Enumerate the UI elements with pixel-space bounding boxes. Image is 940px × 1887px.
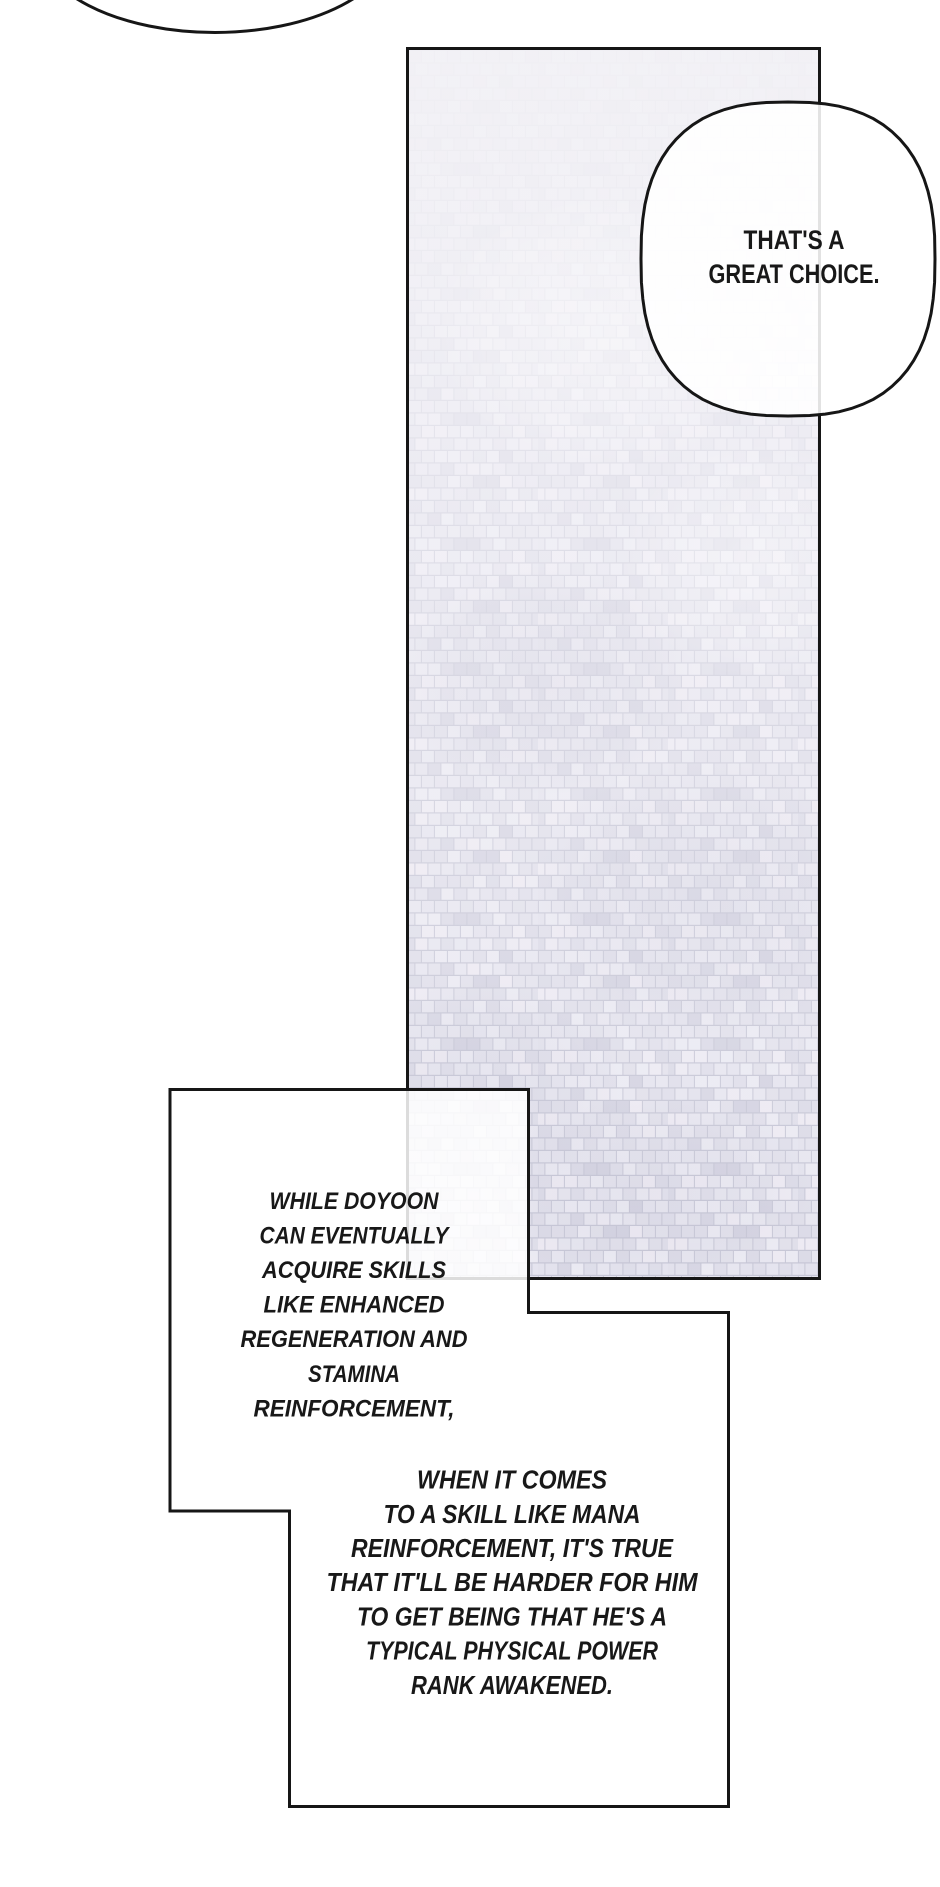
svg-text:RANK AWAKENED.: RANK AWAKENED. <box>411 1670 613 1700</box>
svg-text:TO A SKILL LIKE MANA: TO A SKILL LIKE MANA <box>384 1499 641 1529</box>
svg-text:LIKE ENHANCED: LIKE ENHANCED <box>264 1292 445 1319</box>
svg-text:ACQUIRE SKILLS: ACQUIRE SKILLS <box>261 1257 446 1284</box>
svg-text:THAT'S A: THAT'S A <box>744 225 845 255</box>
svg-text:CAN EVENTUALLY: CAN EVENTUALLY <box>260 1222 451 1249</box>
svg-text:TYPICAL PHYSICAL POWER: TYPICAL PHYSICAL POWER <box>366 1636 658 1666</box>
svg-text:TO GET BEING THAT HE'S A: TO GET BEING THAT HE'S A <box>357 1601 667 1631</box>
svg-text:STAMINA: STAMINA <box>308 1361 400 1388</box>
svg-text:WHILE DOYOON: WHILE DOYOON <box>270 1188 440 1215</box>
svg-text:GREAT CHOICE.: GREAT CHOICE. <box>709 259 880 289</box>
svg-text:WHEN IT COMES: WHEN IT COMES <box>417 1465 608 1495</box>
svg-text:REINFORCEMENT,: REINFORCEMENT, <box>254 1395 455 1422</box>
svg-text:REGENERATION AND: REGENERATION AND <box>241 1326 468 1353</box>
svg-text:REINFORCEMENT, IT'S TRUE: REINFORCEMENT, IT'S TRUE <box>351 1533 674 1563</box>
svg-text:THAT IT'LL BE HARDER FOR HIM: THAT IT'LL BE HARDER FOR HIM <box>327 1567 699 1597</box>
